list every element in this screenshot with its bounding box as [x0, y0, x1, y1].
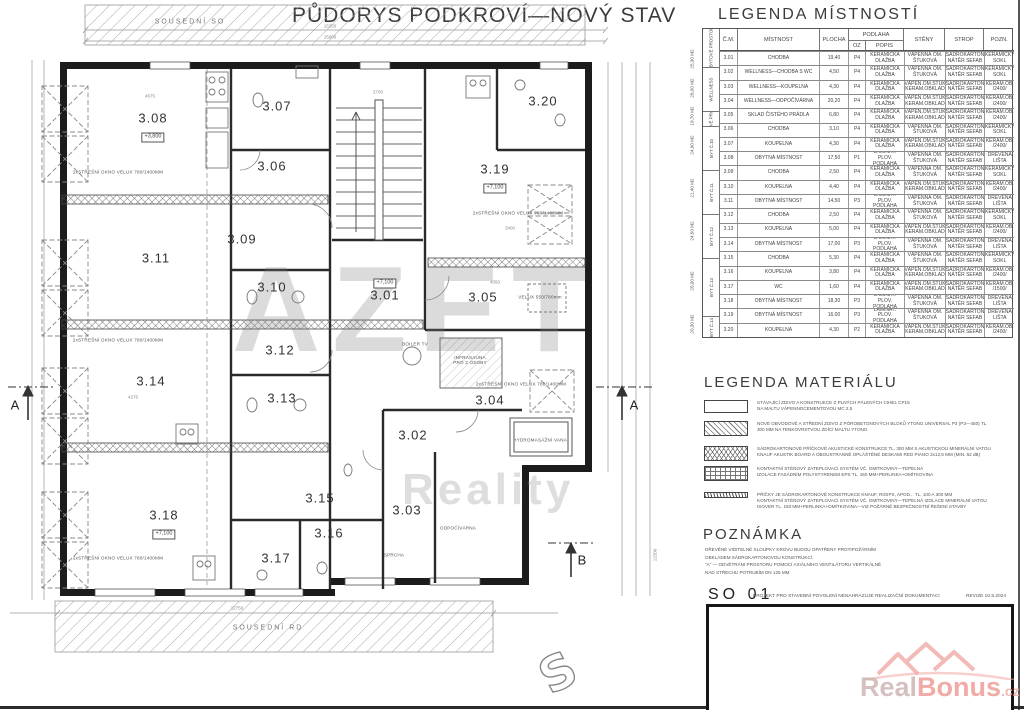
room-label: 3.15: [305, 492, 334, 505]
cell-mistnost: OBYTNÁ MÍSTNOST: [737, 238, 819, 251]
cell-cm: 3.19: [720, 309, 737, 322]
cell-oz: P4: [848, 109, 865, 122]
room-label: 3.17: [261, 552, 290, 565]
cell-steny: VÁPEN.OM.ŠTUK KERAM.OBKLAD: [904, 95, 945, 108]
cell-pozn: DŘEVĚNÁ LIŠTA: [984, 295, 1014, 308]
cell-steny: VÁPEN.OM.ŠTUK KERAM.OBKLAD: [904, 267, 945, 280]
boiler-note: BOILER TV: [402, 342, 428, 347]
table-row: 3.18 OBYTNÁ MÍSTNOST 18,30 P3 LAMINÁT. P…: [720, 294, 1014, 308]
room-label: 3.02: [398, 429, 427, 442]
cell-pozn: KERAM.OB. /2400/: [984, 181, 1014, 194]
neighbor-bottom-label: SOUSEDNÍ RD: [233, 625, 304, 632]
cell-mistnost: KOUPELNA: [737, 138, 819, 151]
cell-pozn: KERAMICKÝ SOKL: [984, 52, 1014, 65]
dim-label: 15000: [324, 35, 337, 40]
group-name-column: NEBYTOVÉ PROSTORY WELLNESS NEBYTOVÉ PROS…: [703, 29, 720, 337]
table-row: 3.15 CHODBA 5,30 P4 KERAMICKÁ DLAŽBA VÁP…: [720, 251, 1014, 265]
cell-steny: VÁPENNÁ OM. ŠTUKOVÁ: [904, 295, 945, 308]
shower-note: SPRCHA: [384, 553, 404, 558]
infrasauna-note: INFRASAUNA PRO 2 OSOBY: [453, 355, 487, 365]
staircase: [336, 100, 422, 240]
cell-cm: 3.20: [720, 324, 737, 337]
cell-mistnost: WC: [737, 281, 819, 294]
table-row: 3.08 OBYTNÁ MÍSTNOST 17,50 P1 LAMINÁT. P…: [720, 151, 1014, 165]
cell-oz: P4: [848, 138, 865, 151]
cell-strop: SÁDROKARTON NÁTĚR SEFAB: [945, 224, 984, 237]
cell-cm: 3.09: [720, 166, 737, 179]
cell-mistnost: KOUPELNA: [737, 224, 819, 237]
cell-mistnost: CHODBA: [737, 209, 819, 222]
roof-window-note: 2xSTŘEŠNÍ OKNO VELUX 780/1400MM: [476, 382, 566, 387]
cell-plocha: 1,60: [819, 281, 848, 294]
cell-plocha: 3,80: [819, 267, 848, 280]
table-body: 3.01 CHODBA 19,40 P4 KERAMICKÁ DLAŽBA VÁ…: [720, 51, 1014, 337]
room-label: 3.14: [136, 375, 165, 388]
legend-rooms-title: LEGENDA MÍSTNOSTÍ: [718, 6, 919, 24]
cell-cm: 3.12: [720, 209, 737, 222]
cell-plocha: 20,20: [819, 95, 848, 108]
cell-pozn: DŘEVĚNÁ LIŠTA: [984, 309, 1014, 322]
cell-popis: KERAMICKÁ DLAŽBA: [865, 324, 904, 337]
cell-steny: VÁPEN.OM.ŠTUK KERAM.OBKLAD: [904, 224, 945, 237]
roof-window-note: 2xSTŘEŠNÍ OKNO VELUX 780/1400MM: [473, 211, 563, 216]
room-label: 3.06: [257, 160, 286, 173]
cell-popis: KERAMICKÁ DLAŽBA: [865, 109, 904, 122]
cell-popis: LAMINÁT. PLOV. PODLAHA: [865, 309, 904, 322]
table-row: 3.01 CHODBA 19,40 P4 KERAMICKÁ DLAŽBA VÁ…: [720, 51, 1014, 65]
cell-plocha: 19,40: [819, 52, 848, 65]
dim-label: 12750: [231, 606, 244, 611]
cell-plocha: 4,30: [819, 81, 848, 94]
cell-steny: VÁPENNÁ OM. ŠTUKOVÁ: [904, 238, 945, 251]
cell-popis: KERAMICKÁ DLAŽBA: [865, 281, 904, 294]
cell-pozn: KERAM.OB. /2400/: [984, 81, 1014, 94]
cell-plocha: 14,50: [819, 195, 848, 208]
cell-pozn: KERAMICKÝ SOKL: [984, 66, 1014, 79]
room-label: 3.13: [267, 392, 296, 405]
cell-mistnost: OBYTNÁ MÍSTNOST: [737, 295, 819, 308]
cell-strop: SÁDROKARTON NÁTĚR SEFAB: [945, 195, 984, 208]
cell-pozn: KERAM.OB. /2400/: [984, 95, 1014, 108]
table-row: 3.11 OBYTNÁ MÍSTNOST 14,50 P3 LAMINÁT. P…: [720, 194, 1014, 208]
dim-label: 3400: [505, 226, 515, 231]
material-swatch-partition: [704, 492, 748, 498]
velux-note: VELUX 550/780mm: [518, 295, 562, 300]
room-label: 3.10: [257, 281, 286, 294]
room-label: 3.03: [392, 504, 421, 517]
cell-steny: VÁPENNÁ OM. ŠTUKOVÁ: [904, 166, 945, 179]
cell-cm: 3.08: [720, 152, 737, 165]
table-row: 3.04 WELLNESS—ODPOČÍVÁRNA 20,20 P4 KERAM…: [720, 94, 1014, 108]
cell-steny: VÁPENNÁ OM. ŠTUKOVÁ: [904, 195, 945, 208]
cell-mistnost: OBYTNÁ MÍSTNOST: [737, 309, 819, 322]
cell-mistnost: KOUPELNA: [737, 324, 819, 337]
cell-cm: 3.03: [720, 81, 737, 94]
cell-steny: VÁPEN.OM.ŠTUK KERAM.OBKLAD: [904, 109, 945, 122]
cell-strop: SÁDROKARTON NÁTĚR SEFAB: [945, 166, 984, 179]
group-area-label: 20,30 M2: [690, 314, 695, 333]
cell-popis: LAMINÁT. PLOV. PODLAHA: [865, 152, 904, 165]
cell-pozn: DŘEVĚNÁ LIŠTA: [984, 195, 1014, 208]
room-label: 3.20: [528, 95, 557, 108]
section-letter-a-left: A: [11, 398, 20, 413]
roof-window-note: 2xSTŘEŠNÍ OKNO VELUX 780/1400MM: [73, 556, 163, 561]
cell-popis: KERAMICKÁ DLAŽBA: [865, 95, 904, 108]
note-body: DŘEVĚNÉ VIDITELNÉ SLOUPKY KROVU BUDOU OP…: [705, 546, 1005, 576]
cell-strop: SÁDROKARTON NÁTĚR SEFAB: [945, 281, 984, 294]
room-label: 3.11: [142, 252, 170, 265]
cell-cm: 3.14: [720, 238, 737, 251]
cell-oz: P4: [848, 166, 865, 179]
table-row: 3.17 WC 1,60 P4 KERAMICKÁ DLAŽBA VÁPEN.O…: [720, 280, 1014, 294]
room-label: 3.04: [475, 394, 504, 407]
group-cell: WELLNESS: [703, 67, 719, 111]
cell-steny: VÁPENNÁ OM. ŠTUKOVÁ: [904, 309, 945, 322]
cell-steny: VÁPEN.OM.ŠTUK KERAM.OBKLAD: [904, 138, 945, 151]
cell-popis: KERAMICKÁ DLAŽBA: [865, 81, 904, 94]
cell-strop: SÁDROKARTON NÁTĚR SEFAB: [945, 209, 984, 222]
cell-oz: P2: [848, 324, 865, 337]
cell-oz: P4: [848, 95, 865, 108]
roof-window-note: 2xSTŘEŠNÍ OKNO VELUX 780/1400MM: [73, 338, 163, 343]
roof-window-note: 2xSTŘEŠNÍ OKNO VELUX 780/1400MM: [73, 170, 163, 175]
group-cell: BYT Č.13: [703, 258, 719, 316]
cell-cm: 3.13: [720, 224, 737, 237]
table-row: 3.12 CHODBA 2,50 P4 KERAMICKÁ DLAŽBA VÁP…: [720, 208, 1014, 222]
cell-plocha: 16,00: [819, 309, 848, 322]
cell-popis: LAMINÁT. PLOV. PODLAHA: [865, 238, 904, 251]
room-label: +7,1003.01: [370, 271, 399, 302]
dim-label: 4050: [490, 280, 500, 285]
group-cell: NEBYTOVÉ PROSTORY: [703, 29, 719, 67]
cell-cm: 3.16: [720, 267, 737, 280]
cell-plocha: 5,00: [819, 224, 848, 237]
cell-strop: SÁDROKARTON NÁTĚR SEFAB: [945, 324, 984, 337]
legend-rooms-table: NEBYTOVÉ PROSTORY WELLNESS NEBYTOVÉ PROS…: [702, 28, 1013, 338]
watermark-reality: Reality: [402, 468, 574, 512]
room-label: 3.16: [314, 527, 343, 540]
cell-mistnost: OBYTNÁ MÍSTNOST: [737, 195, 819, 208]
material-item: STÁVAJÍCÍ ZDIVO A KONSTRUKCE Z PLNÝCH PÁ…: [704, 400, 1020, 413]
cell-cm: 3.07: [720, 138, 737, 151]
table-row: 3.06 CHODBA 3,10 P4 KERAMICKÁ DLAŽBA VÁP…: [720, 123, 1014, 137]
cell-pozn: KERAM.OB. /2400/: [984, 109, 1014, 122]
cell-popis: KERAMICKÁ DLAŽBA: [865, 252, 904, 265]
cell-oz: P4: [848, 66, 865, 79]
cell-popis: KERAMICKÁ DLAŽBA: [865, 66, 904, 79]
table-row: 3.20 KOUPELNA 4,30 P2 KERAMICKÁ DLAŽBA V…: [720, 323, 1014, 337]
cell-popis: KERAMICKÁ DLAŽBA: [865, 181, 904, 194]
material-item: SÁDROKARTONOVÉ PŘÍČKOVÉ AKUSTICKÉ KONSTR…: [704, 446, 1020, 461]
room-label: 3.08+3,800: [138, 112, 167, 143]
north-arrow-icon: S: [530, 640, 587, 706]
cell-plocha: 5,30: [819, 252, 848, 265]
cell-strop: SÁDROKARTON NÁTĚR SEFAB: [945, 66, 984, 79]
cell-popis: KERAMICKÁ DLAŽBA: [865, 166, 904, 179]
cell-steny: VÁPENNÁ OM. ŠTUKOVÁ: [904, 209, 945, 222]
cell-popis: LAMINÁT. PLOV. PODLAHA: [865, 295, 904, 308]
cell-cm: 3.06: [720, 124, 737, 137]
cell-plocha: 4,30: [819, 324, 848, 337]
realbonus-wordmark: RealBonus.cz: [860, 674, 1018, 701]
room-label: 3.09: [227, 233, 256, 246]
cell-oz: P4: [848, 52, 865, 65]
cell-steny: VÁPENNÁ OM. ŠTUKOVÁ: [904, 124, 945, 137]
group-cell: BYT Č.12: [703, 214, 719, 258]
cell-popis: KERAMICKÁ DLAŽBA: [865, 224, 904, 237]
cell-pozn: KERAM.OB. /2400/: [984, 324, 1014, 337]
cell-strop: SÁDROKARTON NÁTĚR SEFAB: [945, 109, 984, 122]
legend-materials-title: LEGENDA MATERIÁLU: [704, 374, 898, 391]
cell-steny: VÁPENNÁ OM. ŠTUKOVÁ: [904, 252, 945, 265]
room-label: 3.12: [265, 344, 294, 357]
table-row: 3.07 KOUPELNA 4,30 P4 KERAMICKÁ DLAŽBA V…: [720, 137, 1014, 151]
cell-strop: SÁDROKARTON NÁTĚR SEFAB: [945, 309, 984, 322]
table-row: 3.10 KOUPELNA 4,40 P4 KERAMICKÁ DLAŽBA V…: [720, 180, 1014, 194]
dim-label: 4675: [145, 94, 155, 99]
group-area-label: 24,90 M2: [690, 135, 695, 154]
cell-strop: SÁDROKARTON NÁTĚR SEFAB: [945, 95, 984, 108]
cell-pozn: KERAMICKÝ SOKL: [984, 124, 1014, 137]
room-label: 3.18+7,100: [149, 509, 178, 540]
cell-strop: SÁDROKARTON NÁTĚR SEFAB: [945, 181, 984, 194]
cell-plocha: 2,50: [819, 166, 848, 179]
cell-steny: VÁPEN.OM.ŠTUK KERAM.OBKLAD: [904, 181, 945, 194]
section-letter-a-right: A: [630, 398, 639, 413]
cell-pozn: DŘEVĚNÁ LIŠTA: [984, 152, 1014, 165]
cell-oz: P4: [848, 181, 865, 194]
cell-plocha: 4,30: [819, 138, 848, 151]
cell-plocha: 17,50: [819, 152, 848, 165]
project-stage-text: PROJEKT PRO STAVEBNÍ POVOLENÍ NENAHRAZUJ…: [753, 594, 965, 599]
material-item: PŘÍČKY JE SÁDROKARTONOVÉ KONSTRUKCE KNAU…: [704, 492, 1020, 510]
cell-oz: P4: [848, 124, 865, 137]
cell-strop: SÁDROKARTON NÁTĚR SEFAB: [945, 138, 984, 151]
cell-oz: P4: [848, 81, 865, 94]
neighbor-top-label: SOUSEDNÍ SO: [155, 19, 226, 26]
material-swatch-insulation: [704, 466, 748, 481]
cell-steny: VÁPEN.OM.ŠTUK KERAM.OBKLAD: [904, 81, 945, 94]
cell-mistnost: WELLNESS—ODPOČÍVÁRNA: [737, 95, 819, 108]
material-item: KONTAKTNÍ STĚNOVÝ ZATEPLOVACÍ SYSTÉM VČ.…: [704, 466, 1020, 481]
cell-cm: 3.17: [720, 281, 737, 294]
group-area-label: 19,70 M2: [690, 106, 695, 125]
cell-popis: LAMINÁT. PLOV. PODLAHA: [865, 195, 904, 208]
cell-mistnost: WELLNESS—CHODBA S WC: [737, 66, 819, 79]
group-area-label: 25,30 M2: [690, 49, 695, 68]
cell-cm: 3.02: [720, 66, 737, 79]
cell-plocha: 6,80: [819, 109, 848, 122]
group-area-label: 24,50 M2: [690, 221, 695, 240]
room-label: 3.05: [468, 291, 497, 304]
cell-cm: 3.04: [720, 95, 737, 108]
cell-mistnost: CHODBA: [737, 166, 819, 179]
cell-mistnost: CHODBA: [737, 252, 819, 265]
note-title: POZNÁMKA: [703, 526, 803, 543]
cell-pozn: KERAMICKÝ SOKL: [984, 252, 1014, 265]
cell-strop: SÁDROKARTON NÁTĚR SEFAB: [945, 124, 984, 137]
cell-popis: KERAMICKÁ DLAŽBA: [865, 267, 904, 280]
cell-oz: P3: [848, 238, 865, 251]
cell-strop: SÁDROKARTON NÁTĚR SEFAB: [945, 152, 984, 165]
cell-strop: SÁDROKARTON NÁTĚR SEFAB: [945, 267, 984, 280]
cell-strop: SÁDROKARTON NÁTĚR SEFAB: [945, 238, 984, 251]
material-swatch-acoustic: [704, 446, 748, 461]
table-header: Č.M. MÍSTNOST PLOCHA PODLAHA OZ POPIS ST…: [720, 29, 1014, 51]
cell-mistnost: KOUPELNA: [737, 267, 819, 280]
cell-oz: P3: [848, 295, 865, 308]
cell-pozn: KERAM.OB. /2400/: [984, 224, 1014, 237]
cell-popis: KERAMICKÁ DLAŽBA: [865, 138, 904, 151]
cell-plocha: 18,30: [819, 295, 848, 308]
rest-room-note: ODPOČÍVÁRNA: [440, 526, 476, 531]
room-label: 3.07: [262, 100, 291, 113]
group-area-label: 28,00 M2: [690, 78, 695, 97]
cell-strop: SÁDROKARTON NÁTĚR SEFAB: [945, 295, 984, 308]
bath-note: HYDROMASÁŽNÍ VANA: [513, 438, 567, 443]
table-row: 3.14 OBYTNÁ MÍSTNOST 17,00 P3 LAMINÁT. P…: [720, 237, 1014, 251]
group-cell: BYT Č.14: [703, 316, 719, 337]
group-cell: BYT Č.10: [703, 126, 719, 170]
level-badge: +7,100: [153, 530, 176, 540]
cell-pozn: DŘEVĚNÁ LIŠTA: [984, 238, 1014, 251]
table-row: 3.19 OBYTNÁ MÍSTNOST 16,00 P3 LAMINÁT. P…: [720, 308, 1014, 322]
cell-oz: P4: [848, 224, 865, 237]
cell-cm: 3.18: [720, 295, 737, 308]
table-row: 3.03 WELLNESS—KOUPELNA 4,30 P4 KERAMICKÁ…: [720, 80, 1014, 94]
material-item: NOVÉ OBVODOVÉ A STŘEDNÍ ZDIVO Z PÓROBETO…: [704, 421, 1020, 436]
cell-popis: KERAMICKÁ DLAŽBA: [865, 209, 904, 222]
level-badge: +3,800: [142, 133, 165, 143]
table-row: 3.13 KOUPELNA 5,00 P4 KERAMICKÁ DLAŽBA V…: [720, 223, 1014, 237]
dim-label: 2700: [373, 90, 383, 95]
level-badge: +7,100: [484, 184, 507, 194]
cell-plocha: 2,50: [819, 209, 848, 222]
cell-strop: SÁDROKARTON NÁTĚR SEFAB: [945, 52, 984, 65]
section-letter-b: B: [578, 553, 587, 568]
material-swatch-existing: [704, 400, 748, 413]
cell-oz: P1: [848, 152, 865, 165]
cell-mistnost: CHODBA: [737, 124, 819, 137]
cell-cm: 3.11: [720, 195, 737, 208]
cell-mistnost: OBYTNÁ MÍSTNOST: [737, 152, 819, 165]
table-row: 3.16 KOUPELNA 3,80 P4 KERAMICKÁ DLAŽBA V…: [720, 266, 1014, 280]
group-cell: BYT Č.11: [703, 170, 719, 214]
cell-steny: VÁPENNÁ OM. ŠTUKOVÁ: [904, 66, 945, 79]
cell-oz: P4: [848, 267, 865, 280]
revision-text: REVIZE 10.5.2024: [966, 594, 1006, 599]
cell-pozn: KERAM.OB. /1500/: [984, 281, 1014, 294]
cell-oz: P4: [848, 281, 865, 294]
page-border-right: [1018, 0, 1020, 710]
material-swatch-ytong: [704, 421, 748, 436]
dim-label: 12200: [653, 549, 658, 562]
cell-steny: VÁPENNÁ OM. ŠTUKOVÁ: [904, 152, 945, 165]
cell-cm: 3.05: [720, 109, 737, 122]
group-area-label: 21,40 M2: [690, 178, 695, 197]
realbonus-watermark: RealBonus.cz: [860, 640, 1018, 706]
cell-plocha: 4,50: [819, 66, 848, 79]
cell-pozn: KERAM.OB. /2400/: [984, 267, 1014, 280]
cell-pozn: KERAM.OB. /2400/: [984, 138, 1014, 151]
cell-plocha: 4,40: [819, 181, 848, 194]
cell-cm: 3.10: [720, 181, 737, 194]
cell-mistnost: CHODBA: [737, 52, 819, 65]
cell-strop: SÁDROKARTON NÁTĚR SEFAB: [945, 81, 984, 94]
header-podlaha: PODLAHA OZ POPIS: [848, 29, 903, 50]
cell-oz: P4: [848, 252, 865, 265]
cell-cm: 3.15: [720, 252, 737, 265]
cell-mistnost: SKLAD ČISTÉHO PRÁDLA: [737, 109, 819, 122]
drawing-sheet: S PŮDORYS PODKROVÍ—NOVÝ STAV SOUSEDNÍ SO…: [0, 0, 1024, 710]
cell-plocha: 3,10: [819, 124, 848, 137]
cell-popis: KERAMICKÁ DLAŽBA: [865, 52, 904, 65]
room-label: 3.19+7,100: [480, 163, 509, 194]
table-row: 3.02 WELLNESS—CHODBA S WC 4,50 P4 KERAMI…: [720, 65, 1014, 79]
cell-oz: P4: [848, 209, 865, 222]
cell-oz: P3: [848, 195, 865, 208]
cell-steny: VÁPEN.OM.ŠTUK KERAM.OBKLAD: [904, 324, 945, 337]
cell-cm: 3.01: [720, 52, 737, 65]
dim-label: 15250: [324, 24, 337, 29]
table-row: 3.05 SKLAD ČISTÉHO PRÁDLA 6,80 P4 KERAMI…: [720, 108, 1014, 122]
cell-plocha: 17,00: [819, 238, 848, 251]
group-area-label: 25,00 M2: [690, 271, 695, 290]
cell-mistnost: WELLNESS—KOUPELNA: [737, 81, 819, 94]
table-row: 3.09 CHODBA 2,50 P4 KERAMICKÁ DLAŽBA VÁP…: [720, 165, 1014, 179]
cell-strop: SÁDROKARTON NÁTĚR SEFAB: [945, 252, 984, 265]
group-cell: NEBYTOVÉ PROSTORY: [703, 111, 719, 126]
cell-mistnost: KOUPELNA: [737, 181, 819, 194]
cell-pozn: KERAMICKÝ SOKL: [984, 209, 1014, 222]
cell-oz: P3: [848, 309, 865, 322]
cell-steny: VÁPENNÁ OM. ŠTUKOVÁ: [904, 52, 945, 65]
cell-popis: KERAMICKÁ DLAŽBA: [865, 124, 904, 137]
cell-steny: VÁPEN.OM.ŠTUK KERAM.OBKLAD: [904, 281, 945, 294]
dim-label: 4275: [128, 395, 138, 400]
cell-pozn: KERAMICKÝ SOKL: [984, 166, 1014, 179]
